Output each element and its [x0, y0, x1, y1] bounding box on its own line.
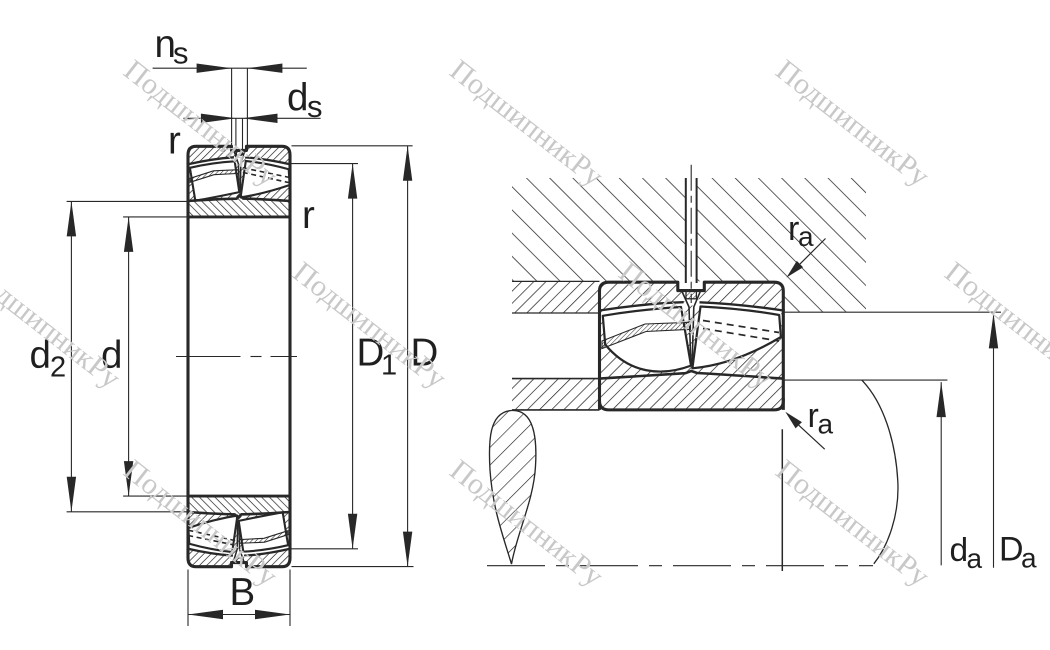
svg-text:s: s — [173, 36, 189, 71]
svg-text:a: a — [818, 408, 834, 439]
svg-text:s: s — [307, 89, 323, 124]
svg-text:d: d — [950, 532, 969, 569]
svg-text:r: r — [302, 194, 315, 237]
svg-text:a: a — [967, 543, 983, 574]
svg-text:a: a — [1021, 543, 1037, 574]
svg-text:D: D — [999, 531, 1024, 569]
svg-text:d: d — [287, 77, 308, 120]
svg-text:a: a — [798, 221, 814, 252]
